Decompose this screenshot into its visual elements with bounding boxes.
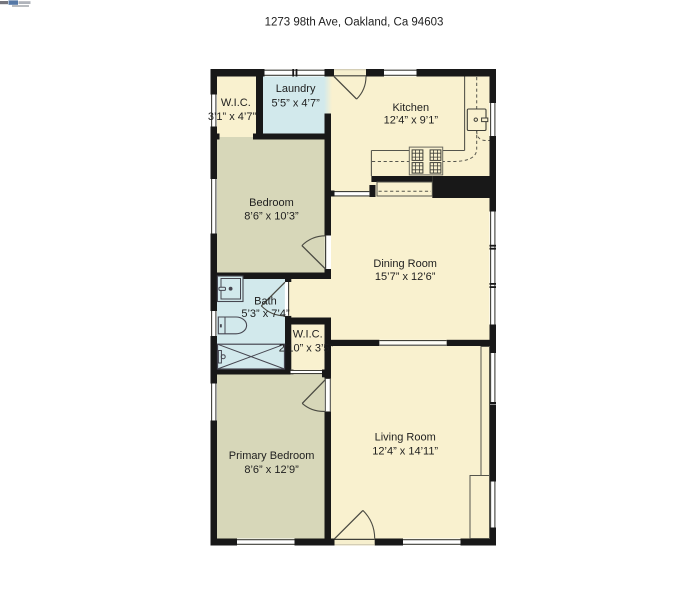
svg-text:12’4” x 9’1”: 12’4” x 9’1”	[384, 115, 439, 127]
svg-text:Bath: Bath	[254, 296, 277, 308]
svg-text:2’10” x 3’5”: 2’10” x 3’5”	[279, 343, 334, 355]
svg-text:1273 98th Ave, Oakland, Ca 946: 1273 98th Ave, Oakland, Ca 94603	[265, 17, 444, 29]
svg-text:15’7” x 12’6”: 15’7” x 12’6”	[375, 271, 436, 283]
svg-text:3’1” x 4’7”: 3’1” x 4’7”	[208, 111, 257, 123]
svg-text:Kitchen: Kitchen	[392, 102, 429, 114]
svg-text:Laundry: Laundry	[276, 83, 316, 95]
svg-text:Primary Bedroom: Primary Bedroom	[229, 450, 315, 462]
svg-text:5’5” x 4’7”: 5’5” x 4’7”	[271, 98, 320, 110]
svg-text:Living Room: Living Room	[375, 432, 436, 444]
svg-text:W.I.C.: W.I.C.	[293, 329, 323, 341]
svg-text:8’6” x 10’3”: 8’6” x 10’3”	[244, 211, 299, 223]
svg-text:8’6” x 12’9”: 8’6” x 12’9”	[244, 464, 299, 476]
svg-text:W.I.C.: W.I.C.	[221, 97, 251, 109]
svg-text:Dining Room: Dining Room	[373, 258, 437, 270]
svg-text:12’4” x 14’11”: 12’4” x 14’11”	[372, 445, 438, 457]
svg-text:5’3” x 7’4”: 5’3” x 7’4”	[241, 308, 290, 320]
svg-text:Bedroom: Bedroom	[249, 197, 294, 209]
